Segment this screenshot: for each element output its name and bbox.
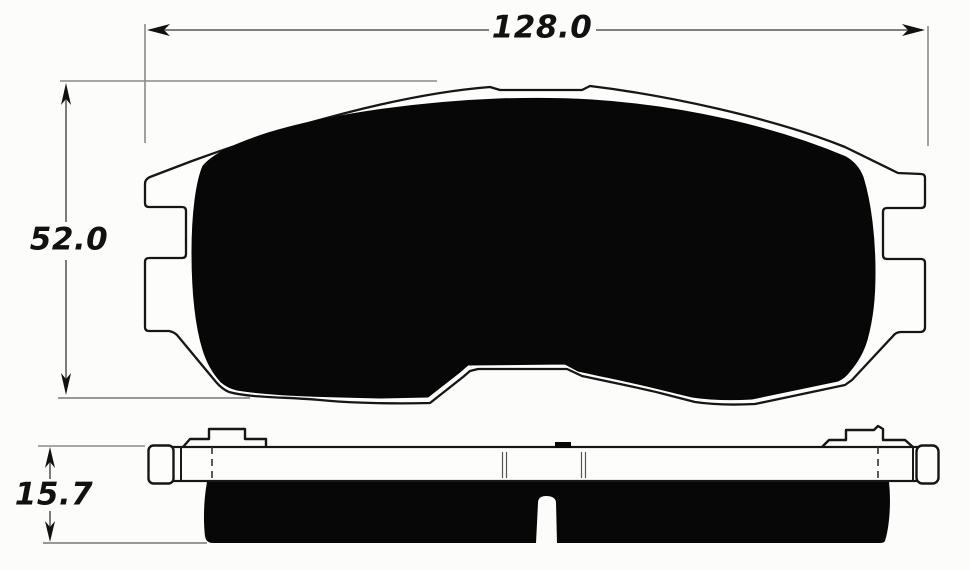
pad-side-view (149, 426, 939, 543)
drawing-canvas: 128.0 52.0 15.7 (0, 0, 970, 570)
dimension-width-label: 128.0 (492, 13, 593, 44)
side-left-end-cap (149, 446, 174, 484)
side-friction-material (204, 482, 890, 543)
side-right-clip (822, 426, 913, 447)
side-right-end-cap (917, 446, 939, 484)
technical-drawing-svg (0, 0, 970, 570)
side-left-clip (183, 429, 266, 447)
pad-front-view (145, 86, 925, 405)
side-top-edge-mark (555, 442, 571, 448)
dimension-height-label: 52.0 (30, 225, 109, 256)
front-friction-material (192, 98, 875, 399)
side-backplate (153, 447, 922, 481)
dimension-thickness-label: 15.7 (15, 480, 94, 511)
